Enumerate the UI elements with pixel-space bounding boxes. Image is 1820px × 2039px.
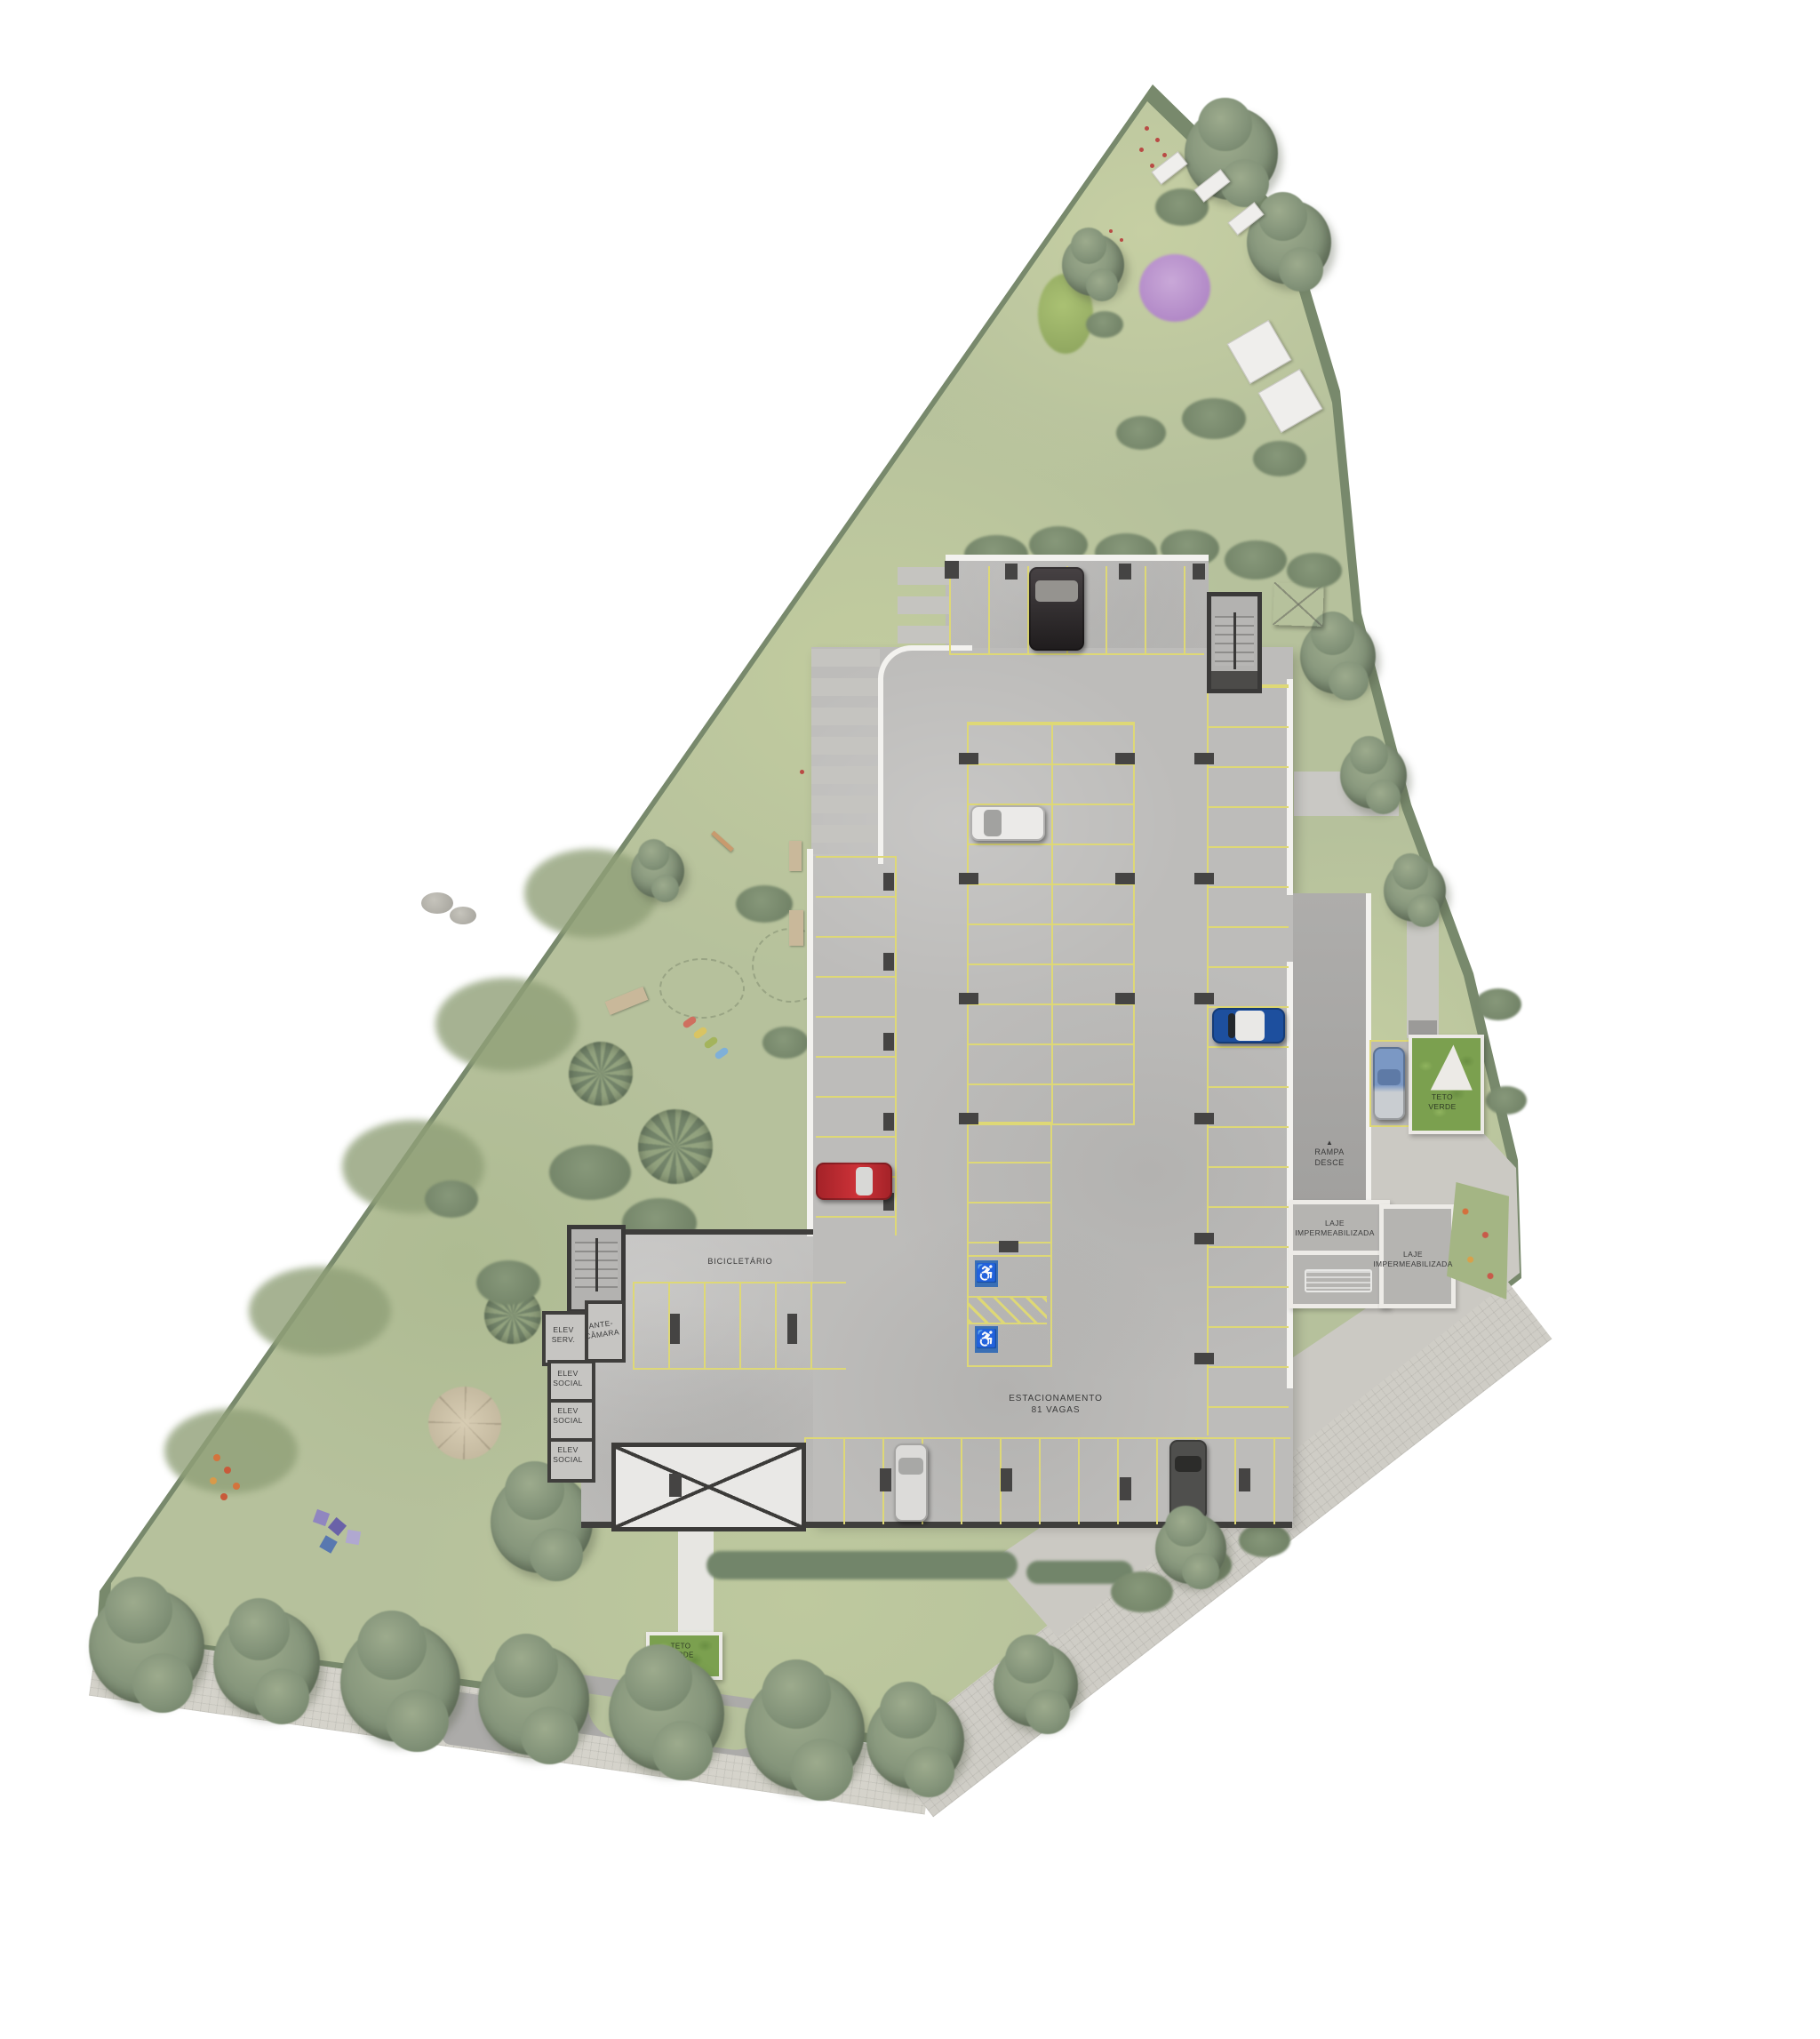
pillar	[1005, 564, 1018, 580]
pillar	[959, 753, 978, 764]
tree	[1062, 234, 1124, 296]
car-windshield	[1377, 1069, 1401, 1085]
street-tree	[745, 1671, 865, 1791]
flower-dot	[1155, 138, 1160, 142]
bush	[425, 1180, 478, 1218]
pillar	[945, 561, 959, 579]
bush	[736, 885, 793, 923]
parking-stalls-center	[967, 722, 1135, 1125]
pillar	[1194, 753, 1214, 764]
pillar	[1194, 993, 1214, 1004]
edge-vegetation	[164, 1409, 298, 1493]
flower-dot	[800, 770, 804, 774]
pillar	[670, 1314, 680, 1344]
car-red	[816, 1163, 892, 1200]
flower-dot	[1139, 148, 1144, 152]
site-plan-canvas: ♿ ♿	[0, 0, 1820, 2039]
flower-dot	[224, 1467, 231, 1474]
wall	[613, 1229, 813, 1235]
green-roof-box-right	[1409, 1035, 1484, 1134]
pillar	[1194, 1353, 1214, 1364]
pillar	[959, 1113, 978, 1124]
street-tree	[609, 1656, 724, 1771]
bush	[1486, 1086, 1527, 1115]
car-silver-bottom	[894, 1443, 928, 1522]
pillar	[1194, 1113, 1214, 1124]
flower-dot	[1120, 238, 1123, 242]
reserved-area-crossbox	[611, 1443, 806, 1531]
parasol	[428, 1387, 501, 1459]
bench	[789, 910, 803, 946]
bush	[1111, 1571, 1173, 1612]
street-tree	[340, 1622, 460, 1742]
pillar	[1239, 1468, 1250, 1491]
street-tree	[994, 1643, 1078, 1727]
pillar	[787, 1314, 797, 1344]
hedge-bush	[1287, 553, 1342, 588]
flower-dot	[1150, 164, 1154, 168]
bush	[1086, 311, 1123, 338]
flower-dot	[1109, 229, 1113, 233]
pillar	[1119, 564, 1131, 580]
flower-dot	[1145, 126, 1149, 131]
skylight-triangle	[1425, 1042, 1474, 1093]
bush	[762, 1027, 809, 1059]
car-windshield	[1175, 1456, 1201, 1472]
pillar	[1115, 993, 1135, 1004]
accessible-hatch	[969, 1296, 1047, 1324]
parking-stalls-bottom	[804, 1437, 1290, 1524]
pillar	[1115, 873, 1135, 884]
pillar	[1193, 564, 1205, 580]
pillar	[883, 873, 894, 891]
bush	[1253, 441, 1306, 476]
edge-vegetation	[435, 978, 578, 1071]
pillar	[883, 953, 894, 971]
curb	[946, 555, 1209, 561]
pillar	[959, 993, 978, 1004]
pillar	[880, 1468, 891, 1491]
tree	[631, 844, 684, 898]
bush	[549, 1145, 631, 1200]
pillar	[883, 1033, 894, 1051]
pillar	[1115, 753, 1135, 764]
car-dark-top	[1029, 567, 1084, 651]
parking-stalls-center-low	[967, 1122, 1052, 1257]
label-waterproof-slab: LAJEIMPERMEABILIZADA	[1373, 1250, 1453, 1269]
street-tree	[478, 1644, 589, 1755]
flower-dot	[1162, 153, 1167, 157]
parking-stalls-right	[1207, 684, 1289, 1435]
striped-paving	[811, 649, 880, 856]
label-elev-social: ELEVSOCIAL	[553, 1445, 583, 1465]
label-green-roof: TETOVERDE	[1428, 1092, 1456, 1112]
car-white-center	[970, 805, 1045, 841]
bush	[1182, 398, 1246, 439]
stairwell-top	[1207, 592, 1262, 693]
flower-dot	[213, 1454, 220, 1461]
flower-dot	[233, 1483, 240, 1490]
car-windshield	[898, 1458, 922, 1475]
pillar	[883, 1113, 894, 1131]
bench	[789, 841, 802, 871]
street-tree	[213, 1609, 320, 1715]
car-light-blue-side	[1373, 1047, 1405, 1120]
paver-tile	[346, 1530, 361, 1545]
flowering-tree	[1139, 254, 1210, 322]
label-waterproof-slab: LAJEIMPERMEABILIZADA	[1295, 1219, 1375, 1238]
bike-stalls	[633, 1282, 846, 1370]
bush	[476, 1260, 540, 1305]
label-bike-room: BICICLETÁRIO	[707, 1257, 772, 1267]
flower-dot	[220, 1493, 227, 1500]
street-tree	[866, 1691, 964, 1789]
bush	[1116, 416, 1166, 450]
boulder	[421, 892, 453, 914]
pillar	[999, 1241, 1018, 1252]
striped-crosswalk	[898, 567, 949, 649]
tree	[491, 1471, 593, 1573]
street-tree	[1155, 1513, 1226, 1584]
lawn-mound	[659, 958, 745, 1019]
curb	[807, 849, 813, 1236]
bush	[1239, 1523, 1290, 1557]
label-elev-social: ELEVSOCIAL	[553, 1406, 583, 1426]
tree	[1300, 619, 1376, 694]
car-windshield	[1228, 1013, 1235, 1038]
pillar	[669, 1474, 682, 1497]
pillar	[1001, 1468, 1012, 1491]
accessible-icon: ♿	[975, 1260, 998, 1287]
car-blue-white-roof	[1212, 1008, 1285, 1043]
car-roof	[1235, 1011, 1265, 1041]
tree	[1384, 860, 1446, 922]
accessible-icon: ♿	[975, 1326, 998, 1353]
label-parking-count: ESTACIONAMENTO81 VAGAS	[1009, 1393, 1103, 1416]
flower-dot	[210, 1477, 217, 1484]
car-windshield	[856, 1167, 873, 1195]
pillar	[1120, 1477, 1131, 1500]
car-windshield	[984, 810, 1002, 836]
bush	[1475, 988, 1521, 1020]
pillar	[959, 873, 978, 884]
boulder	[450, 907, 476, 924]
stair-landing	[1211, 671, 1257, 689]
hedge-bush	[1225, 540, 1287, 580]
stair-stringer	[595, 1238, 598, 1291]
water-feature	[1305, 1269, 1372, 1292]
tree	[1340, 742, 1407, 809]
palm-tree	[569, 1042, 633, 1106]
label-ramp-down: ▲ RAMPADESCE	[1314, 1139, 1344, 1169]
palm-tree	[638, 1109, 713, 1184]
label-elev-social: ELEVSOCIAL	[553, 1369, 583, 1388]
stair-stringer	[1233, 612, 1236, 669]
hedge-strip	[706, 1551, 1018, 1579]
pillar	[1194, 873, 1214, 884]
car-windshield	[1035, 580, 1077, 602]
label-elev-serv: ELEVSERV.	[552, 1325, 576, 1345]
edge-vegetation	[249, 1267, 391, 1355]
street-tree	[89, 1588, 204, 1704]
gazebo-roof	[1273, 582, 1324, 627]
pillar	[1194, 1233, 1214, 1244]
